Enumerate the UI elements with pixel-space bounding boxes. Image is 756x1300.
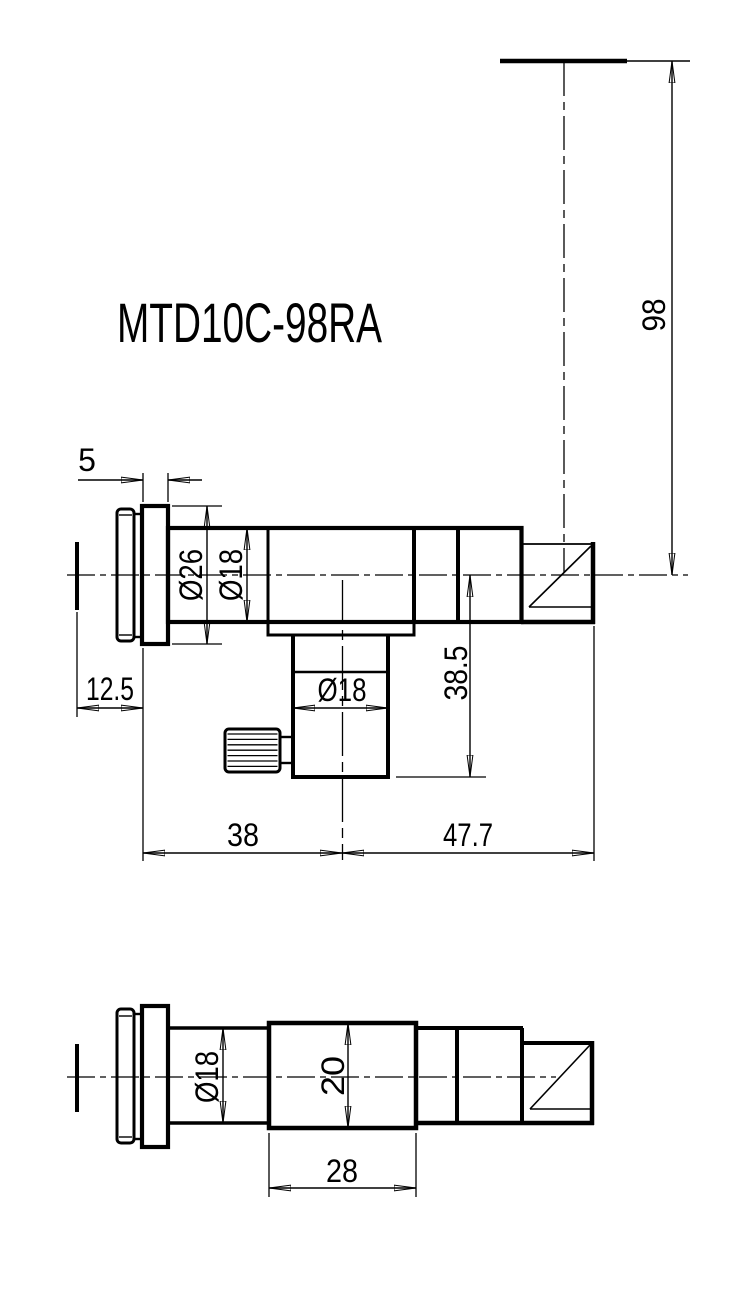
technical-drawing: MTD10C-98RA — [0, 0, 756, 1300]
dim-d18-drop-label: Ø18 — [318, 672, 367, 708]
dim-38-label: 38 — [227, 817, 259, 853]
dim-d18-barrel-label: Ø18 — [213, 549, 249, 601]
dim-38-5-label: 38.5 — [438, 646, 474, 701]
dim-20-label: 20 — [315, 1056, 351, 1096]
dim-28-label: 28 — [326, 1153, 358, 1189]
page-title: MTD10C-98RA — [117, 291, 382, 354]
prism-diagonal — [529, 546, 591, 607]
dim-98-label: 98 — [636, 299, 672, 332]
dim-d26-label: Ø26 — [173, 549, 209, 601]
dim-5-label: 5 — [78, 442, 96, 478]
front-ring — [117, 1009, 134, 1143]
drawing-canvas: MTD10C-98RA — [0, 0, 756, 1300]
side-view: 5 12.5 Ø26 Ø18 Ø18 38.5 98 38 47.7 — [67, 61, 690, 861]
top-view: Ø18 20 28 — [67, 1006, 594, 1197]
dim-47-7-label: 47.7 — [443, 817, 493, 853]
dim-d18-top-label: Ø18 — [189, 1051, 225, 1103]
prism-diagonal — [530, 1045, 590, 1109]
dim-12-5-label: 12.5 — [86, 671, 134, 707]
